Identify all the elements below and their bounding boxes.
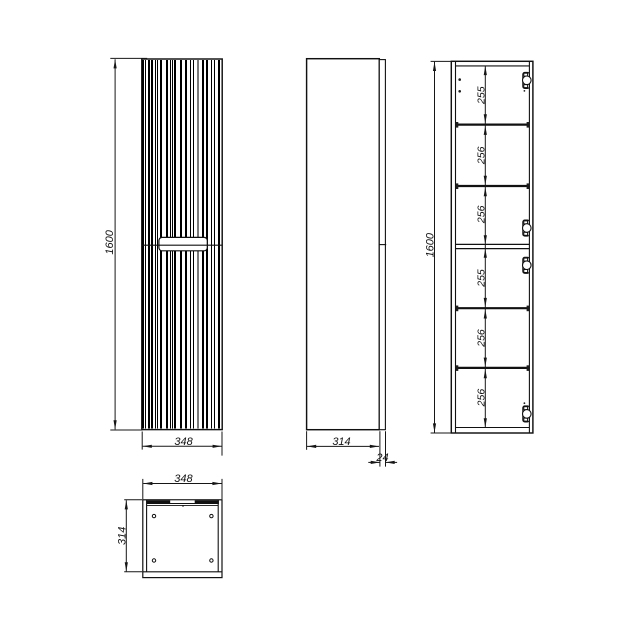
svg-text:256: 256 (475, 146, 487, 165)
svg-text:256: 256 (475, 205, 487, 224)
svg-text:348: 348 (174, 436, 193, 448)
svg-text:255: 255 (475, 269, 487, 288)
svg-text:24: 24 (375, 452, 388, 464)
svg-text:256: 256 (475, 329, 487, 348)
svg-text:255: 255 (475, 86, 487, 105)
svg-text:348: 348 (174, 473, 193, 485)
svg-text:1600: 1600 (424, 232, 436, 257)
svg-text:314: 314 (332, 436, 350, 448)
svg-text:1600: 1600 (104, 229, 116, 254)
svg-text:256: 256 (475, 389, 487, 408)
svg-text:314: 314 (117, 527, 129, 545)
